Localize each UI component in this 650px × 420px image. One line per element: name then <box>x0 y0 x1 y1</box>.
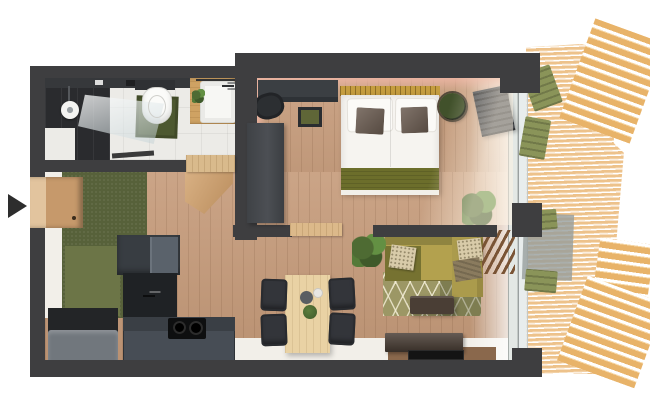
bed-cushion-right <box>401 107 429 134</box>
entrance-door-knob <box>72 216 76 220</box>
bedroom-plant <box>462 192 496 225</box>
wall-stub-top-right <box>500 53 540 93</box>
wall-top-bathroom <box>30 66 247 78</box>
wall-bedroom-living-left <box>233 225 292 237</box>
bed-cushion-left <box>355 107 384 134</box>
dining-chair-bottom-right <box>328 312 356 345</box>
kitchen-cabinet-front <box>150 237 178 273</box>
tv-panel <box>408 350 464 360</box>
wall-bathroom-bottom <box>45 160 186 172</box>
cooktop-burner-left <box>173 321 186 334</box>
toilet-seat-ring <box>148 95 166 118</box>
dining-chair-bottom-left <box>260 314 287 347</box>
green-felt-panel-light <box>65 246 120 316</box>
bench-front <box>48 330 118 363</box>
wall-bedroom-living-right <box>373 225 497 237</box>
table-moss-decor <box>303 305 317 319</box>
entrance-door-wood <box>30 177 83 228</box>
wall-stub-bottom-right <box>512 348 542 377</box>
bed-center-crease <box>390 97 391 167</box>
vanity-sink <box>200 81 236 123</box>
living-plant <box>352 234 386 267</box>
dining-chair-top-right <box>328 277 356 310</box>
wall-top-bedroom <box>237 53 540 78</box>
wall-bottom <box>30 360 542 377</box>
coffee-table <box>410 296 454 314</box>
balcony-cushion-2 <box>524 269 558 294</box>
towel-bar <box>196 79 235 81</box>
shower-head <box>61 101 79 119</box>
floor-plan-canvas <box>0 0 650 420</box>
bedroom-door-threshold <box>290 223 342 236</box>
bed-blanket <box>341 168 439 192</box>
bedroom-stool-cushion <box>301 110 319 124</box>
table-bowl <box>313 288 323 298</box>
bed-foot-sheet <box>341 190 439 195</box>
wall-stub-middle-right <box>512 203 542 237</box>
table-plate <box>300 291 313 304</box>
wardrobe <box>247 123 284 223</box>
vanity-plant <box>192 89 205 103</box>
shower-floor-light-corner <box>45 128 75 160</box>
ledge-soap <box>95 80 103 85</box>
cooktop-burner-right <box>189 321 203 335</box>
round-side-table <box>439 93 466 120</box>
kitchen-faucet <box>143 295 155 297</box>
sink-faucet <box>222 85 234 87</box>
dining-chair-top-left <box>260 279 287 312</box>
bathroom-door-threshold <box>186 155 235 172</box>
sofa-pillow-left <box>389 244 417 270</box>
entrance-arrow-icon <box>8 194 27 218</box>
sofa-blanket <box>453 257 483 282</box>
